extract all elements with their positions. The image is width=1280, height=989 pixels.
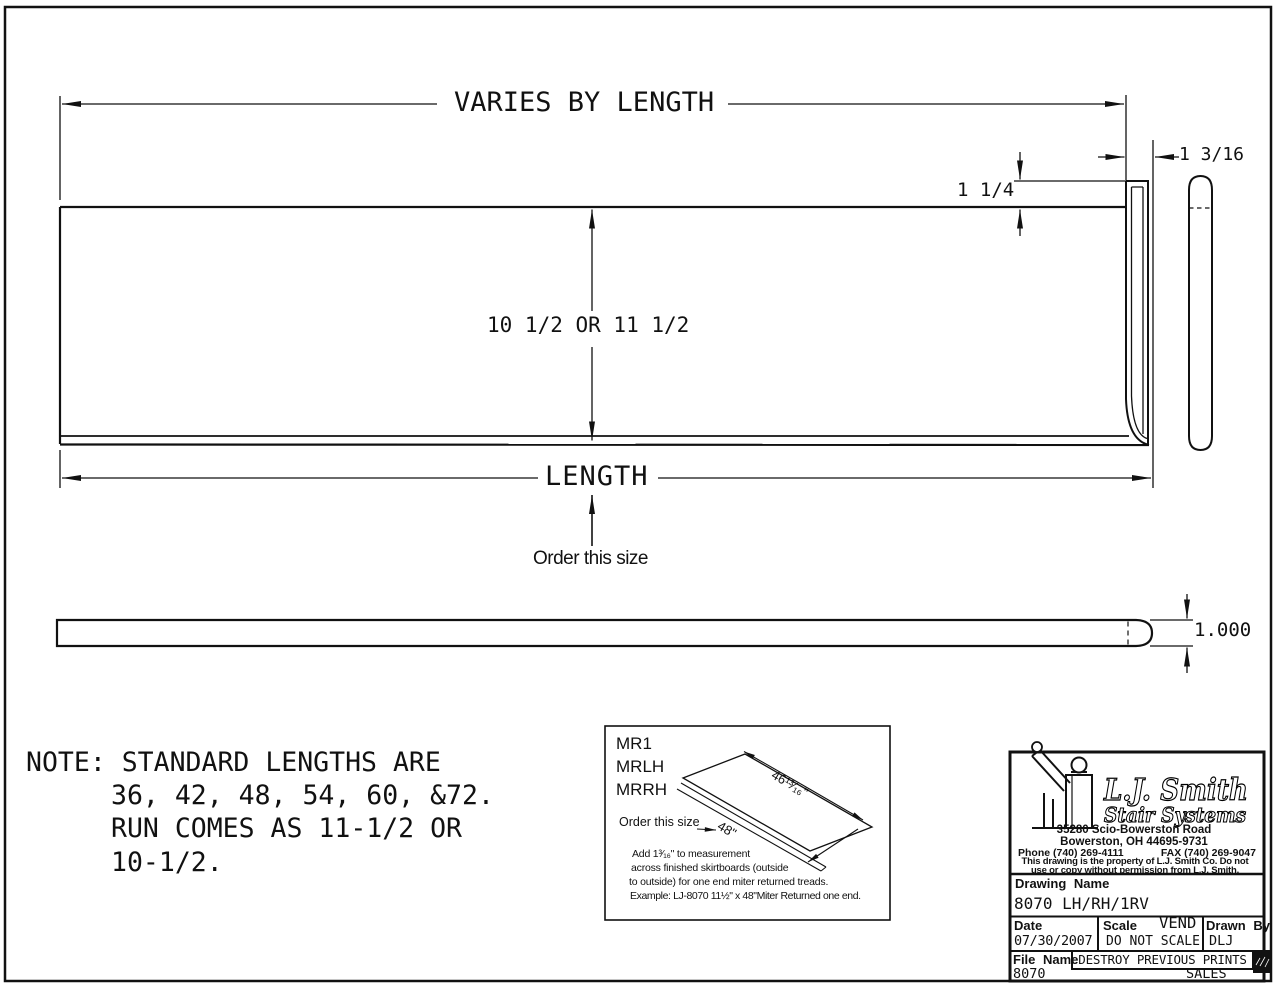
note-line-2: 36, 42, 48, 54, 60, &72. xyxy=(111,782,494,810)
dim-return-width: 1 3/16 xyxy=(1179,146,1244,165)
inset-note-4: Example: LJ-8070 11½" x 48"Miter Returne… xyxy=(630,891,861,902)
drawing-name-value: 8070 LH/RH/1RV xyxy=(1014,896,1149,913)
date-label: Date xyxy=(1014,919,1042,933)
legal-line-2: use or copy without permission from L.J.… xyxy=(1010,866,1260,876)
department-value: SALES xyxy=(1186,967,1227,981)
scale-value: DO NOT SCALE xyxy=(1106,935,1200,949)
file-name-value: 8070 xyxy=(1013,967,1046,981)
inset-model-mrlh: MRLH xyxy=(616,758,664,776)
dim-depth: 10 1/2 OR 11 1/2 xyxy=(487,314,689,336)
drawing-sheet: L.J. Smith Stair Systems VARIES BY LENGT… xyxy=(0,0,1280,989)
inset-order-label: Order this size xyxy=(619,816,700,829)
dim-thickness: 1.000 xyxy=(1194,621,1251,641)
vend-value: VEND xyxy=(1159,915,1196,931)
inset-model-mr1: MR1 xyxy=(616,735,652,753)
note-line-3: RUN COMES AS 11-1/2 OR xyxy=(111,815,462,843)
inset-note-3: to outside) for one end miter returned t… xyxy=(629,877,828,888)
drawing-name-label: Drawing Name xyxy=(1015,877,1109,891)
tread-profile-view xyxy=(57,594,1193,673)
stair-newel-logo-icon xyxy=(1032,742,1098,828)
inset-model-mrrh: MRRH xyxy=(616,781,667,799)
note-line-1: NOTE: STANDARD LENGTHS ARE xyxy=(26,749,441,777)
note-line-4: 10-1/2. xyxy=(111,849,223,877)
drawn-by-value: DLJ xyxy=(1209,934,1233,948)
dim-length: LENGTH xyxy=(545,463,649,491)
destroy-previous-prints: DESTROY PREVIOUS PRINTS xyxy=(1072,953,1253,966)
approval-stamp xyxy=(1253,950,1271,973)
drawn-by-label: Drawn By xyxy=(1206,919,1270,933)
company-address-1: 35280 Scio-Bowerston Road xyxy=(1012,824,1256,836)
file-name-label: File Name xyxy=(1013,953,1078,967)
date-value: 07/30/2007 xyxy=(1014,934,1092,948)
dim-nosing: 1 1/4 xyxy=(957,181,1014,201)
inset-note-2: across finished skirtboards (outside xyxy=(631,863,788,874)
dim-varies-by-length: VARIES BY LENGTH xyxy=(454,89,714,117)
scale-label: Scale xyxy=(1103,919,1137,933)
order-this-size-label: Order this size xyxy=(533,549,648,569)
inset-note-1: Add 1³⁄₁₆" to measurement xyxy=(632,849,750,860)
